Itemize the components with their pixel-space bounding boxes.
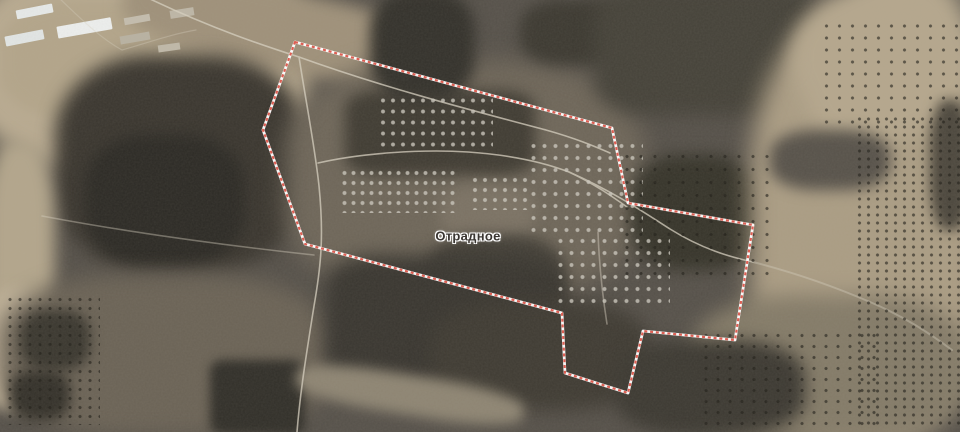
- boundary-dashes: [263, 42, 753, 393]
- boundary-overlay: [0, 0, 960, 432]
- boundary-casing: [263, 42, 753, 393]
- place-label[interactable]: Отрадное: [435, 229, 500, 244]
- satellite-map-viewport[interactable]: Отрадное: [0, 0, 960, 432]
